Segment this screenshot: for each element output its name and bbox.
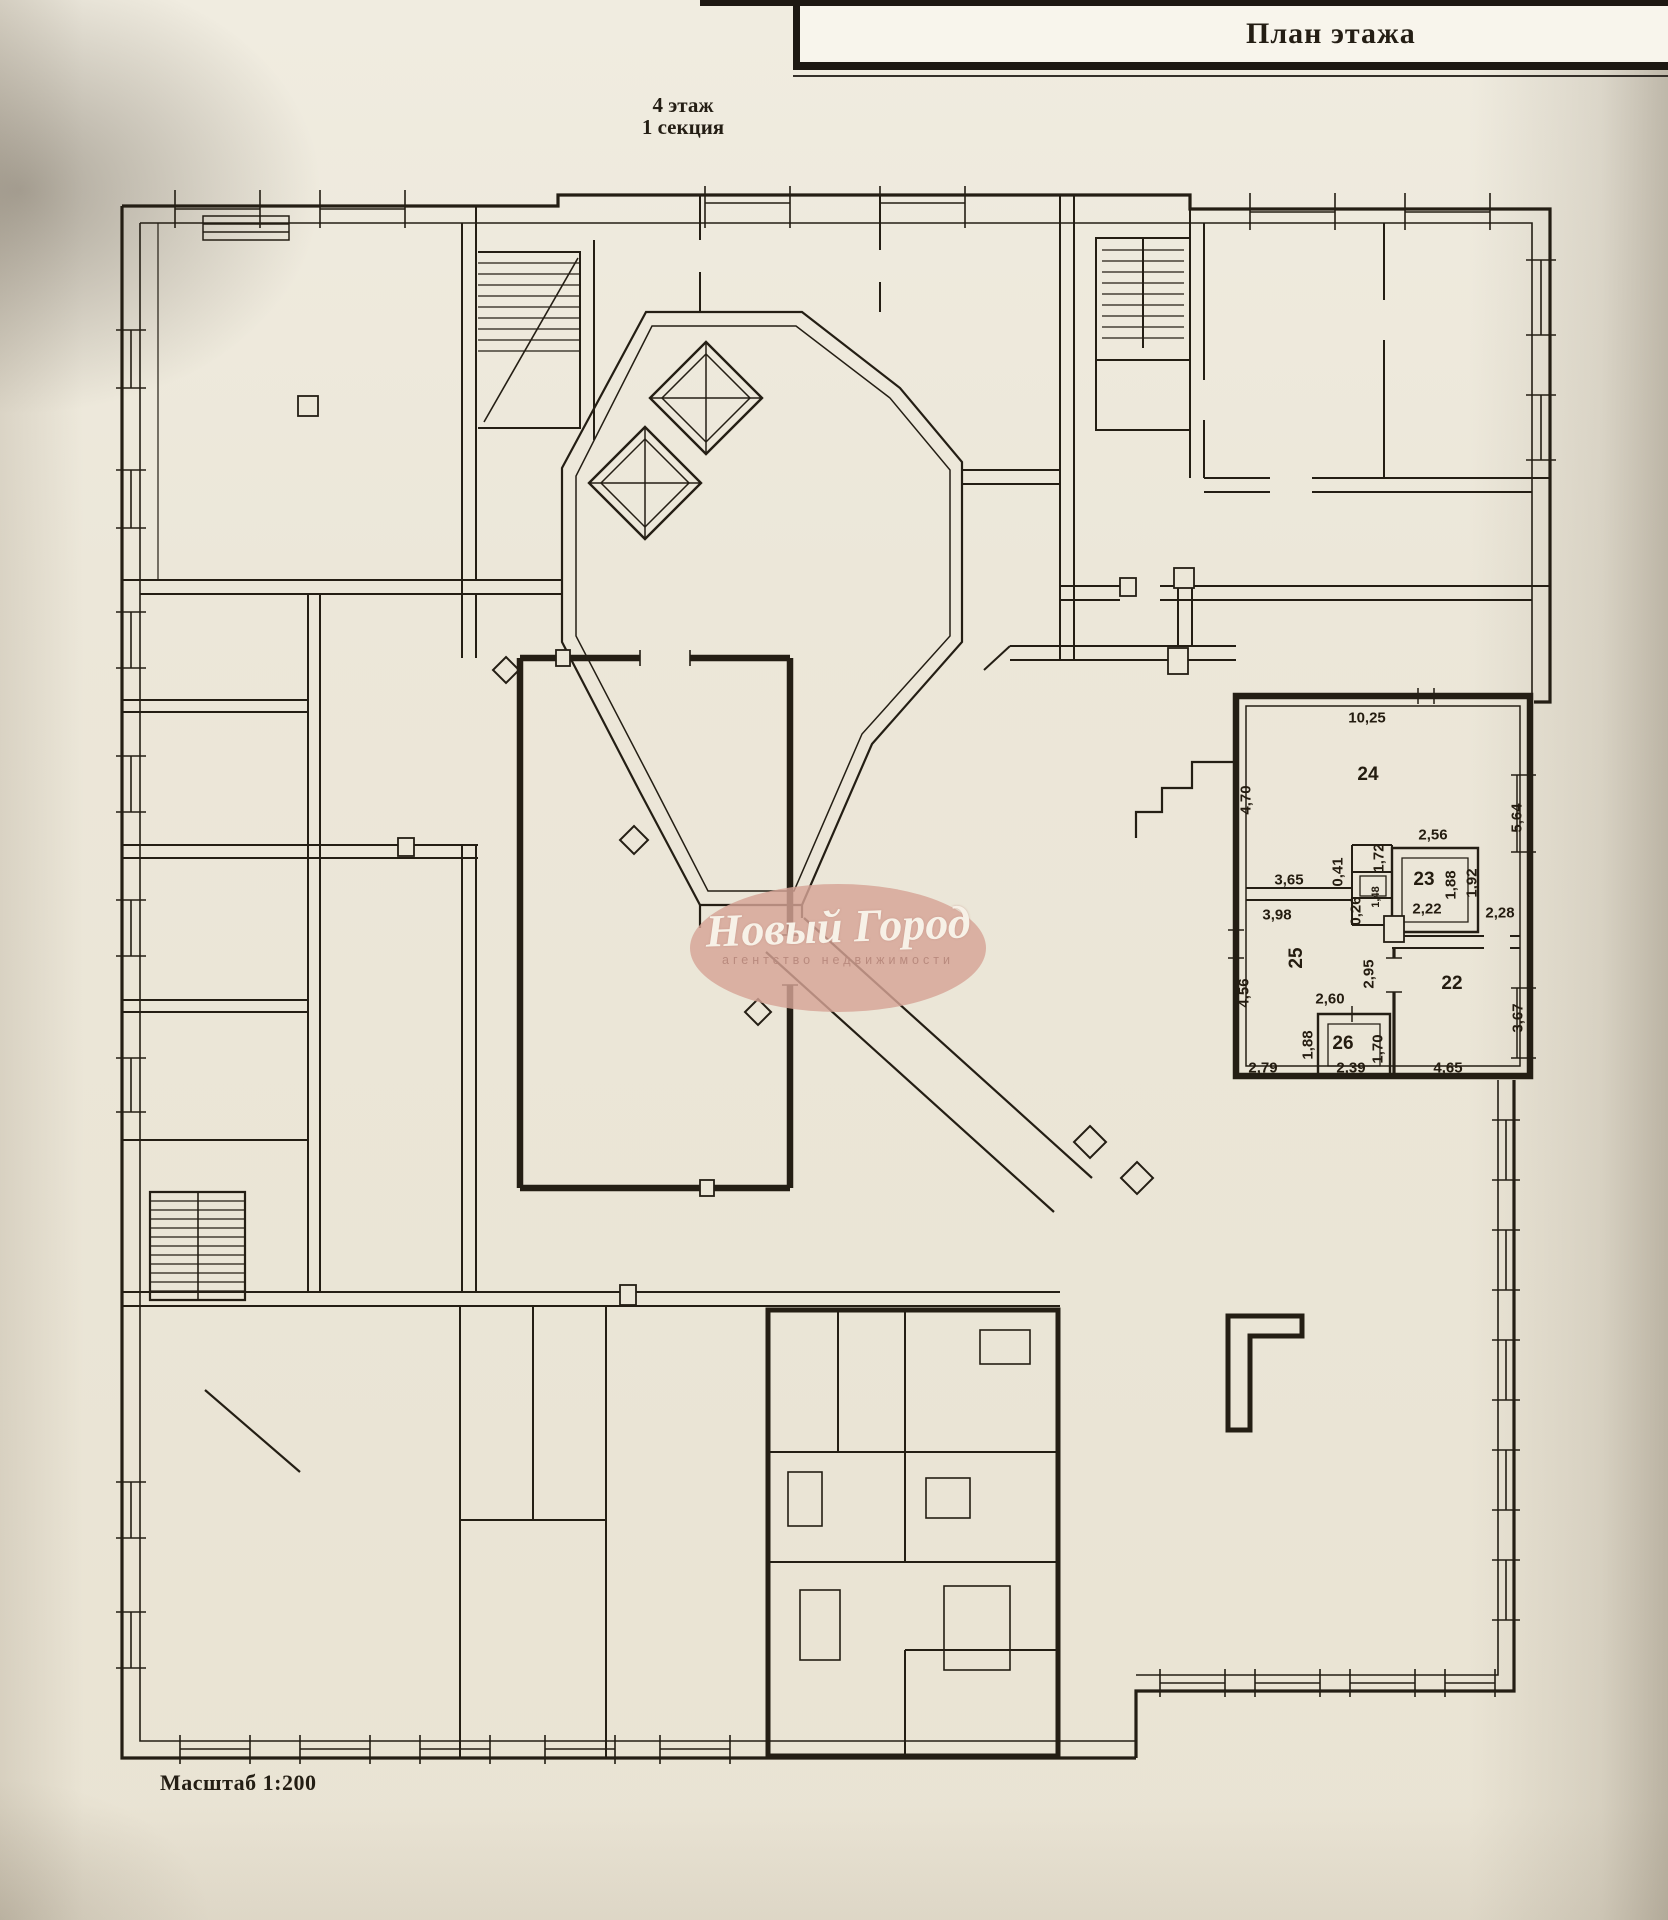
- scanned-floorplan-page: План этажа 4 этаж 1 секция: [0, 0, 1668, 1920]
- bathroom-cluster: [768, 1310, 1058, 1756]
- bold-l-mark: [1228, 1316, 1302, 1430]
- staircase-bottom-left: [150, 1192, 245, 1300]
- unit-walls: [1168, 568, 1536, 1076]
- door-blocks: [298, 396, 1136, 1305]
- title-block-bottom-rule: [793, 75, 1668, 77]
- title-block-bottom-border: [793, 62, 1668, 70]
- section-number: 1 секция: [608, 116, 758, 138]
- floor-label: 4 этаж 1 секция: [608, 94, 758, 138]
- floor-number: 4 этаж: [608, 94, 758, 116]
- page-title: План этажа: [1246, 17, 1416, 51]
- scale-label: Масштаб 1:200: [160, 1770, 317, 1796]
- atrium-walls: [562, 312, 962, 928]
- title-block: План этажа: [793, 6, 1668, 62]
- watermark: Новый Город агентство недвижимости: [690, 884, 986, 1012]
- watermark-name: Новый Город: [689, 895, 987, 958]
- staircase-top-center: [478, 240, 594, 440]
- staircase-top-right: [1096, 238, 1190, 430]
